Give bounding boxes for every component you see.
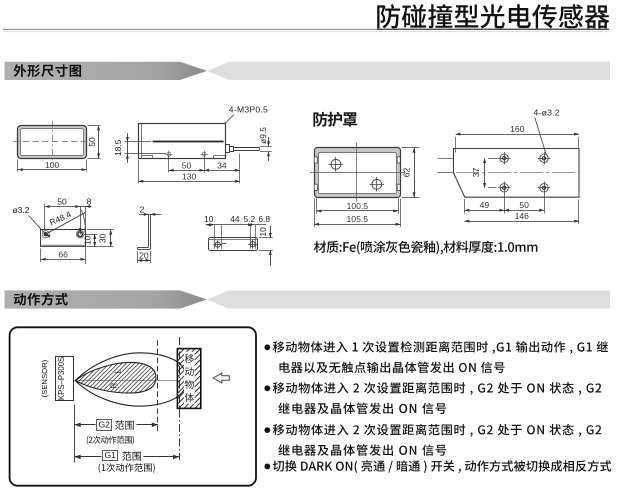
svg-text:4-M3P0.5: 4-M3P0.5 (229, 105, 268, 115)
svg-text:105.5: 105.5 (347, 214, 369, 224)
svg-text:KPS–P300S: KPS–P300S (57, 357, 66, 400)
svg-text:50: 50 (519, 200, 529, 210)
svg-text:5.2: 5.2 (244, 214, 256, 224)
svg-text:50: 50 (182, 160, 192, 170)
svg-text:50: 50 (57, 197, 67, 207)
svg-text:10: 10 (204, 214, 214, 224)
svg-text:62: 62 (401, 168, 411, 178)
svg-text:50: 50 (87, 137, 97, 147)
svg-text:6.8: 6.8 (258, 214, 270, 224)
svg-text:R48.4: R48.4 (48, 209, 73, 227)
svg-text:34: 34 (217, 160, 227, 170)
svg-text:R: R (110, 383, 119, 389)
svg-text:30: 30 (98, 233, 108, 243)
svg-text:44: 44 (230, 214, 240, 224)
svg-text:8: 8 (87, 197, 92, 207)
svg-text:49: 49 (480, 200, 490, 210)
svg-text:20: 20 (139, 250, 149, 260)
svg-text:L: L (114, 369, 123, 374)
svg-text:146: 146 (515, 211, 530, 221)
svg-text:160: 160 (510, 124, 525, 134)
svg-text:ø9.5: ø9.5 (258, 127, 268, 144)
svg-text:G1: G1 (104, 450, 116, 460)
svg-text:4-ø3.2: 4-ø3.2 (534, 107, 560, 117)
svg-text:ø3.2: ø3.2 (13, 205, 30, 215)
svg-text:(SENSOR): (SENSOR) (40, 359, 49, 397)
svg-text:2: 2 (140, 204, 145, 214)
svg-text:10: 10 (258, 227, 268, 237)
svg-text:130: 130 (182, 172, 197, 182)
svg-text:66: 66 (58, 249, 68, 259)
svg-text:100.5: 100.5 (347, 201, 369, 211)
svg-text:37: 37 (471, 168, 481, 178)
svg-text:G2: G2 (98, 420, 110, 430)
svg-text:100: 100 (45, 160, 60, 170)
svg-text:10: 10 (82, 236, 92, 246)
svg-text:18.5: 18.5 (113, 139, 123, 156)
